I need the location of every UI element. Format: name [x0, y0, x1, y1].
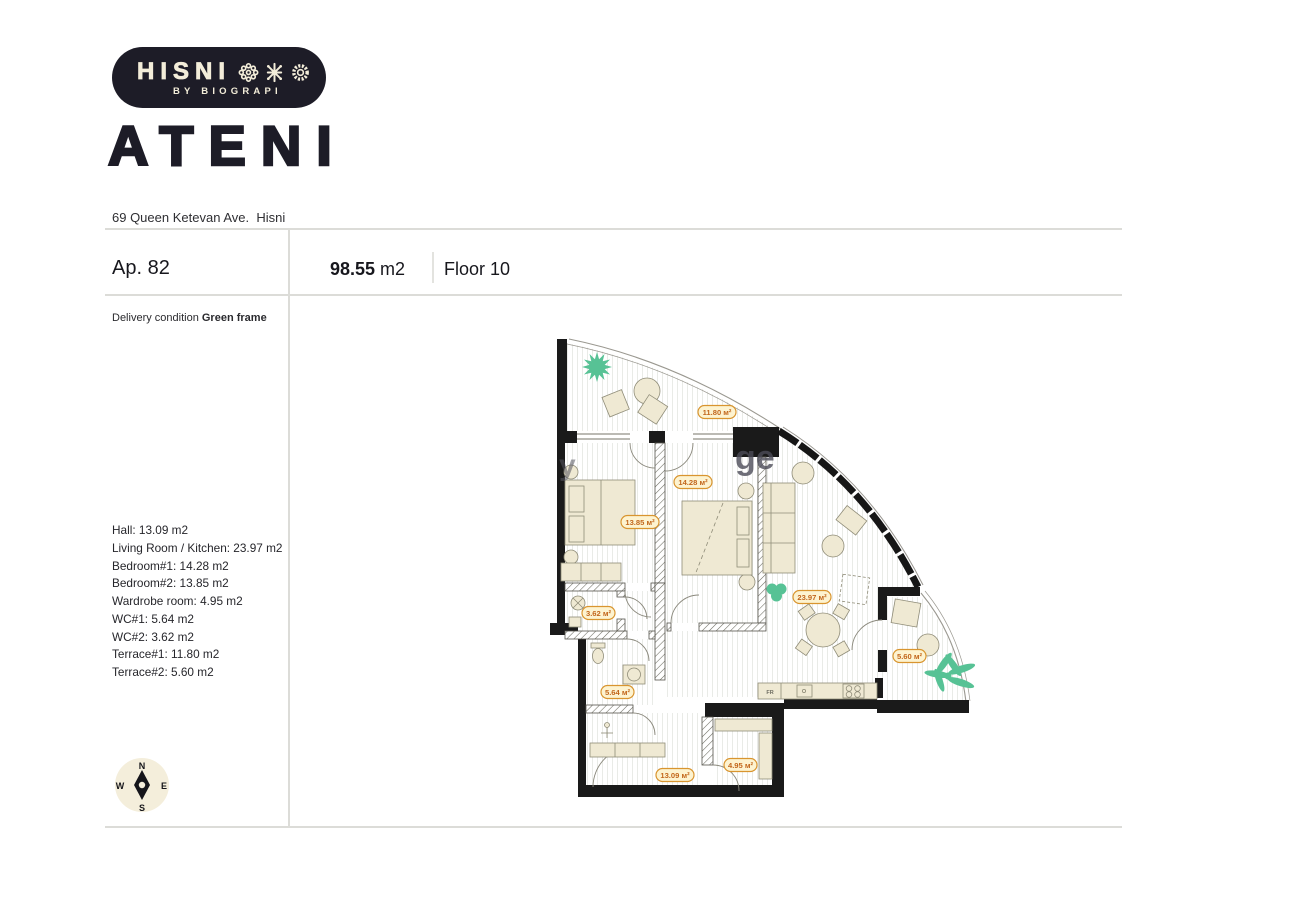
room-list: Hall: 13.09 m2 Living Room / Kitchen: 23…	[112, 522, 283, 682]
address: 69 Queen Ketevan Ave. Hisni	[112, 210, 285, 225]
divider-vertical	[288, 228, 290, 828]
corridor-floor	[667, 631, 758, 697]
sun-wheel-ornament-icon	[290, 62, 311, 83]
asterisk-ornament-icon	[264, 62, 285, 83]
svg-text:13.09 м²: 13.09 м²	[660, 771, 690, 780]
compass-south: S	[139, 803, 145, 813]
apartment-number: Ap. 82	[112, 257, 170, 280]
svg-text:5.60 м²: 5.60 м²	[897, 652, 923, 661]
area-label-wc2: 3.62 м²	[582, 607, 615, 620]
apartment-area: 98.55 m2	[330, 259, 405, 280]
area-label-terrace1: 11.80 м²	[698, 406, 736, 419]
room-list-item-wardrobe: Wardrobe room: 4.95 m2	[112, 593, 283, 611]
area-label-living: 23.97 м²	[793, 591, 831, 604]
room-list-item-terrace2: Terrace#2: 5.60 m2	[112, 664, 283, 682]
floor-label: Floor 10	[444, 259, 510, 280]
svg-text:14.28 м²: 14.28 м²	[678, 478, 708, 487]
terrace1-floor	[567, 343, 777, 431]
room-list-item-wc1: WC#1: 5.64 m2	[112, 611, 283, 629]
delivery-value: Green frame	[202, 312, 267, 324]
svg-text:11.80 м²: 11.80 м²	[703, 408, 732, 417]
delivery-condition: Delivery condition Green frame	[112, 312, 267, 324]
knot-ornament-icon	[238, 62, 259, 83]
room-list-item-bedroom1: Bedroom#1: 14.28 m2	[112, 558, 283, 576]
brand-ornaments	[238, 62, 311, 83]
area-label-hall: 13.09 м²	[656, 769, 694, 782]
building-name: ATENI	[108, 113, 347, 178]
room-list-item-hall: Hall: 13.09 m2	[112, 522, 283, 540]
divider-middle	[105, 294, 1122, 296]
watermark-part2: ge	[735, 439, 775, 477]
room-list-item-bedroom2: Bedroom#2: 13.85 m2	[112, 575, 283, 593]
floor-plan-sheet: HISNI	[0, 0, 1290, 920]
area-value: 98.55	[330, 259, 375, 279]
watermark-part1: y	[559, 449, 576, 482]
brand-logo-row: HISNI	[137, 58, 311, 86]
area-unit: m2	[375, 259, 405, 279]
compass-north: N	[139, 761, 146, 771]
delivery-label: Delivery condition	[112, 312, 202, 324]
svg-text:13.85 м²: 13.85 м²	[625, 518, 655, 527]
compass-east: E	[161, 781, 167, 791]
divider-bottom	[105, 826, 1122, 828]
compass-icon: N S W E	[110, 753, 174, 817]
area-label-terrace2: 5.60 м²	[893, 650, 926, 663]
svg-text:23.97 м²: 23.97 м²	[797, 593, 827, 602]
area-floor-divider	[432, 252, 434, 283]
compass-west: W	[116, 781, 125, 791]
kitchen-counter	[758, 683, 877, 699]
area-label-wardrobe: 4.95 м²	[724, 759, 757, 772]
room-list-item-wc2: WC#2: 3.62 m2	[112, 629, 283, 647]
fridge-label: FR	[766, 690, 773, 696]
room-list-item-living: Living Room / Kitchen: 23.97 m2	[112, 540, 283, 558]
room-list-item-terrace1: Terrace#1: 11.80 m2	[112, 646, 283, 664]
svg-text:5.64 м²: 5.64 м²	[605, 688, 631, 697]
area-label-bedroom1: 14.28 м²	[674, 476, 712, 489]
svg-text:3.62 м²: 3.62 м²	[586, 609, 612, 618]
brand-tagline: BY BIOGRAPI	[173, 86, 282, 97]
brand-name: HISNI	[137, 58, 231, 86]
area-label-bedroom2: 13.85 м²	[621, 516, 659, 529]
divider-top	[105, 228, 1122, 230]
svg-text:4.95 м²: 4.95 м²	[728, 761, 754, 770]
brand-logo: HISNI	[112, 47, 326, 108]
floor-plan: y ge FR 11.80 м² 14.28 м² 13.85 м² 23.97…	[545, 335, 975, 815]
area-label-wc1: 5.64 м²	[601, 686, 634, 699]
